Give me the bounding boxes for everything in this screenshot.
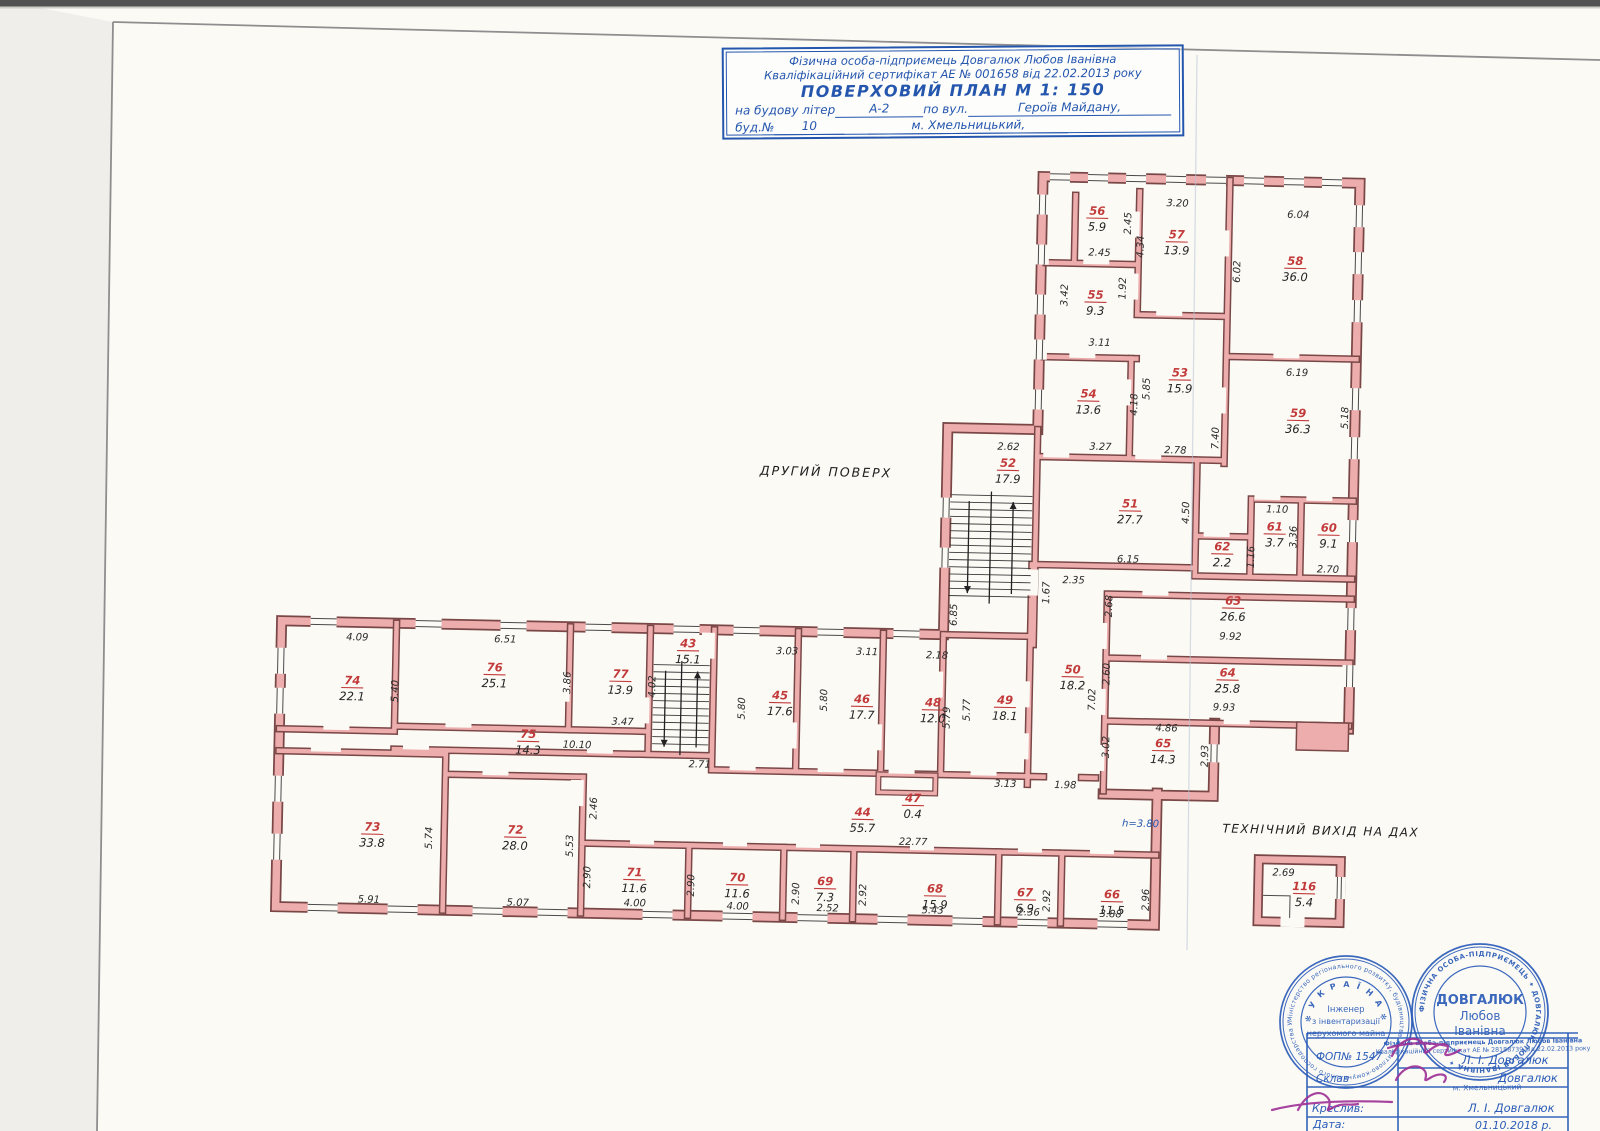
title-block: Фізична особа-підприємець Довгалюк Любов… <box>722 44 1185 139</box>
room-number: 71 <box>626 865 642 879</box>
city-value: м. Хмельницький, <box>868 116 1068 134</box>
dim-label: 1.92 <box>1118 277 1129 299</box>
dim-label: 5.80 <box>737 697 748 719</box>
room-number: 72 <box>507 823 523 837</box>
stamp1-role-2: з інвентаризації <box>1312 1017 1381 1026</box>
bld-number-label: буд.№ <box>735 119 774 135</box>
room-area: 17.9 <box>995 472 1021 487</box>
room-area: 15.1 <box>675 652 701 667</box>
dim-label: 4.18 <box>1129 393 1140 415</box>
street-value: Героїв Майдану, <box>968 98 1171 116</box>
room-label-116: 1165.4 <box>1292 879 1317 909</box>
room-area: 2.2 <box>1213 555 1232 569</box>
room-number: 60 <box>1321 520 1337 534</box>
room-area: 18.2 <box>1059 678 1085 693</box>
dim-label: 6.04 <box>1287 210 1309 221</box>
room-area: 5.9 <box>1088 220 1107 234</box>
room-label-45: 4517.6 <box>767 688 793 719</box>
dim-label: 4.09 <box>346 632 368 643</box>
dim-label: 3.03 <box>776 646 798 657</box>
room-number: 57 <box>1169 227 1185 241</box>
dim-label: 3.27 <box>1089 442 1112 453</box>
street-label: по вул. <box>923 101 968 117</box>
dim-label: 3.47 <box>611 717 634 728</box>
dim-label: 2.90 <box>686 874 697 896</box>
dim-label: 5.43 <box>921 905 943 916</box>
dim-label: 5.80 <box>819 689 830 711</box>
dim-label: 2.90 <box>582 866 593 888</box>
room-number: 44 <box>854 805 871 819</box>
room-number: 63 <box>1225 593 1241 607</box>
dim-label: 10.10 <box>563 740 592 752</box>
room-number: 75 <box>520 727 536 741</box>
dim-label: 3.11 <box>1088 338 1110 349</box>
room-area: 13.6 <box>1075 402 1101 417</box>
dim-label: 2.90 <box>791 882 802 904</box>
plan-group: ДРУГИЙ ПОВЕРХ ТЕХНІЧНИЙ ВИХІД НА ДАХ 742… <box>268 153 1433 938</box>
round-stamp-ministry: Міністерство регіонального розвитку, буд… <box>0 0 1412 1088</box>
room-area: 33.8 <box>359 835 385 850</box>
stamp2-name-1: ДОВГАЛЮК <box>1436 993 1524 1008</box>
room-area: 36.3 <box>1285 422 1311 437</box>
room-area: 0.4 <box>903 807 922 821</box>
room-label-69: 697.3 <box>814 874 837 904</box>
dim-label: 2.68 <box>1104 595 1115 617</box>
room-label-54: 5413.6 <box>1075 386 1101 417</box>
room-number: 59 <box>1290 406 1306 420</box>
sheet-edge-artifacts <box>0 0 1600 1131</box>
dim-label: 2.92 <box>858 884 869 906</box>
room-number: 56 <box>1089 204 1105 218</box>
room-number: 66 <box>1104 887 1120 901</box>
room-number: 52 <box>1000 456 1016 470</box>
dim-label: 3.36 <box>1288 526 1299 548</box>
room-number: 69 <box>817 874 833 888</box>
dim-label: 5.53 <box>565 835 576 857</box>
dim-label: 4.02 <box>647 675 658 697</box>
dim-label: 2.92 <box>1042 890 1053 912</box>
room-label-73: 7333.8 <box>359 819 385 850</box>
wall-chunk <box>1296 722 1349 751</box>
room-area: 11.6 <box>724 886 750 901</box>
stamp1-role-1: Інженер <box>1327 1005 1364 1015</box>
room-area: 17.7 <box>849 708 876 723</box>
dim-label: 7.02 <box>1087 688 1098 710</box>
dim-label: 2.18 <box>926 650 948 661</box>
room-label-70: 7011.6 <box>724 870 750 901</box>
room-area: 11.6 <box>621 881 647 896</box>
dim-label: 2.35 <box>1062 575 1084 586</box>
room-number: 54 <box>1080 386 1096 400</box>
room-number: 64 <box>1220 665 1236 679</box>
room-number: 49 <box>996 693 1013 707</box>
dim-label: 5.85 <box>1141 378 1152 400</box>
dim-label: 9.92 <box>1219 631 1241 642</box>
room-label-76: 7625.1 <box>481 660 507 691</box>
building-letter-value: А-2 <box>835 100 923 118</box>
room-number: 116 <box>1292 879 1316 893</box>
room-area: 14.3 <box>515 743 541 758</box>
room-number: 62 <box>1214 539 1230 553</box>
room-number: 58 <box>1287 254 1303 268</box>
dim-label: 3.42 <box>1059 284 1070 306</box>
room-label-65: 6514.3 <box>1150 736 1176 767</box>
dim-label: 5.18 <box>1340 407 1351 429</box>
dim-label: 2.46 <box>589 797 600 819</box>
dim-label: 22.77 <box>899 837 928 849</box>
table-value-r4: 01.10.2018 р. <box>1475 1119 1552 1131</box>
dim-label: 1.98 <box>1054 780 1076 791</box>
dim-label: 2.45 <box>1088 248 1110 259</box>
room-area: 28.0 <box>502 838 528 853</box>
room-number: 61 <box>1267 519 1283 533</box>
room-label-49: 4918.1 <box>992 693 1018 724</box>
dim-label: 2.70 <box>1317 564 1339 575</box>
room-number: 50 <box>1065 662 1081 676</box>
dim-label: 3.02 <box>1101 736 1112 758</box>
title-number-line: буд.№ 10 м. Хмельницький, <box>735 115 1171 135</box>
room-label-50: 5018.2 <box>1059 662 1085 693</box>
room-number: 51 <box>1122 496 1138 510</box>
room-label-55: 559.3 <box>1084 287 1107 317</box>
room-area: 13.9 <box>1164 243 1190 258</box>
dim-label: 2.45 <box>1123 212 1134 234</box>
room-area: 9.3 <box>1086 304 1105 318</box>
dimension-labels: 4.096.515.403.864.023.4710.102.713.033.1… <box>341 181 1356 926</box>
room-number: 73 <box>364 820 380 834</box>
bld-number-value: 10 <box>774 118 844 135</box>
stamp2-name-2: Любов <box>1460 1009 1501 1023</box>
room-number: 43 <box>679 636 696 650</box>
dim-label: 4.86 <box>1155 723 1177 734</box>
dim-label: 2.96 <box>1141 889 1152 911</box>
room-area: 55.7 <box>849 821 876 836</box>
dim-label: 6.19 <box>1286 368 1308 379</box>
room-number: 46 <box>853 692 870 706</box>
dim-label: 3.11 <box>856 647 878 658</box>
room-area: 25.1 <box>481 676 507 691</box>
room-area: 15.9 <box>1167 381 1193 396</box>
room-area: 17.6 <box>767 704 793 719</box>
dim-label: 9.93 <box>1213 702 1235 713</box>
dim-label: 6.51 <box>494 634 516 645</box>
dim-label: 6.85 <box>949 604 960 626</box>
windows-and-doors <box>268 153 1368 937</box>
room-area: 22.1 <box>339 689 365 704</box>
room-label-58: 5836.0 <box>1282 254 1308 285</box>
room-label-62: 622.2 <box>1211 539 1234 569</box>
room-label-59: 5936.3 <box>1285 406 1311 437</box>
room-number: 45 <box>771 688 788 702</box>
dim-label: 5.40 <box>390 680 401 702</box>
room-label-72: 7228.0 <box>502 822 528 853</box>
room-label-47: 470.4 <box>902 791 925 821</box>
room-number: 77 <box>612 667 628 681</box>
room-number: 47 <box>904 791 921 805</box>
room-number: 68 <box>927 881 943 895</box>
dim-label: 1.67 <box>1041 581 1052 604</box>
dim-label: 7.40 <box>1210 427 1221 449</box>
dim-label: h=3.80 <box>1122 818 1159 830</box>
room-area: 3.7 <box>1265 535 1284 549</box>
scanned-floor-plan-sheet: ДРУГИЙ ПОВЕРХ ТЕХНІЧНИЙ ВИХІД НА ДАХ 742… <box>0 0 1600 1131</box>
dim-label: 2.69 <box>1272 868 1294 879</box>
room-label-44: 4455.7 <box>849 805 876 836</box>
room-number: 55 <box>1087 288 1103 302</box>
room-area: 5.4 <box>1295 895 1314 909</box>
dim-label: 6.02 <box>1232 260 1243 282</box>
dim-label: 2.52 <box>816 903 838 914</box>
room-number: 48 <box>924 695 941 709</box>
dim-label: 5.79 <box>941 706 952 728</box>
dim-label: 6.15 <box>1117 554 1139 565</box>
rect-stamp-line3: м. Хмельницький <box>1453 1082 1522 1092</box>
title-building-line: на будову літер А-2 по вул. Героїв Майда… <box>735 98 1171 118</box>
room-label-71: 7111.6 <box>621 865 647 896</box>
room-number: 53 <box>1172 365 1188 379</box>
floor-label: ДРУГИЙ ПОВЕРХ <box>759 463 893 481</box>
room-area: 14.3 <box>1150 752 1176 767</box>
room-number: 65 <box>1155 736 1171 750</box>
room-area: 18.1 <box>992 709 1018 724</box>
dim-label: 4.00 <box>726 901 748 912</box>
room-number: 74 <box>344 673 360 687</box>
dim-label: 2.62 <box>997 442 1019 453</box>
room-number: 67 <box>1017 885 1033 899</box>
room-area: 25.8 <box>1214 681 1240 696</box>
dim-label: 5.07 <box>506 898 529 909</box>
room-label-53: 5315.9 <box>1167 365 1193 396</box>
dim-label: 2.60 <box>1101 663 1112 685</box>
dim-label: 5.91 <box>358 894 380 905</box>
room-label-77: 7713.9 <box>607 667 633 698</box>
dim-label: 5.74 <box>424 827 435 849</box>
dim-label: 1.10 <box>1266 504 1288 515</box>
dim-label: 3.13 <box>994 779 1016 790</box>
room-label-46: 4617.7 <box>849 692 876 723</box>
dim-label: 3.88 <box>1099 909 1121 920</box>
stamp1-role-3: нерухомого майна <box>1307 1029 1386 1038</box>
room-area: 36.0 <box>1282 270 1308 285</box>
room-area: 13.9 <box>607 683 633 698</box>
title-block-inner: Фізична особа-підприємець Довгалюк Любов… <box>726 48 1181 135</box>
building-label: на будову літер <box>735 102 835 119</box>
dim-label: 5.77 <box>962 698 973 721</box>
room-label-64: 6425.8 <box>1214 665 1240 696</box>
roof-exit-label: ТЕХНІЧНИЙ ВИХІД НА ДАХ <box>1222 820 1419 839</box>
dim-label: 3.20 <box>1166 198 1188 209</box>
dim-label: 4.50 <box>1181 501 1192 523</box>
stamp2-name-3: Іванівна <box>1454 1024 1505 1038</box>
room-label-52: 5217.9 <box>995 456 1021 487</box>
floor-plan-drawing: ДРУГИЙ ПОВЕРХ ТЕХНІЧНИЙ ВИХІД НА ДАХ 742… <box>0 0 1600 1131</box>
room-label-74: 7422.1 <box>339 673 365 704</box>
dim-label: 3.86 <box>562 672 573 694</box>
room-label-61: 613.7 <box>1263 519 1286 549</box>
table-label-data: Дата: <box>1312 1118 1345 1131</box>
dim-label: 2.93 <box>1200 745 1211 767</box>
room-number: 76 <box>487 660 503 674</box>
dim-label: 1.16 <box>1246 546 1257 568</box>
dim-label: 2.78 <box>1164 445 1186 456</box>
room-label-56: 565.9 <box>1086 204 1109 234</box>
dim-label: 4.00 <box>624 898 646 909</box>
room-area: 27.7 <box>1117 512 1144 527</box>
room-label-57: 5713.9 <box>1164 227 1190 258</box>
room-area: 9.1 <box>1319 536 1338 550</box>
room-label-51: 5127.7 <box>1117 496 1144 527</box>
table-value-r3: Л. І. Довгалюк <box>1467 1101 1555 1115</box>
room-area: 26.6 <box>1220 609 1246 624</box>
dim-label: 2.36 <box>1017 907 1039 918</box>
table-label-fop: ФОП№ 1547 <box>1316 1051 1382 1063</box>
room-number: 70 <box>729 870 745 884</box>
dim-label: 2.71 <box>688 759 710 770</box>
room-label-43: 4315.1 <box>675 636 701 667</box>
dim-label: 4.34 <box>1135 235 1146 257</box>
room-label-60: 609.1 <box>1317 520 1340 550</box>
